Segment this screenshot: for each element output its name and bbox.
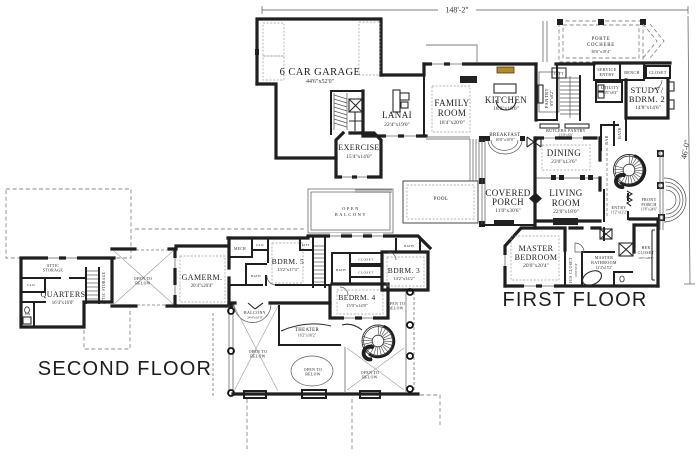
svg-text:ATTIC: ATTIC	[47, 264, 60, 268]
svg-text:BALCONY: BALCONY	[244, 310, 266, 315]
svg-text:PORCH: PORCH	[641, 202, 656, 207]
svg-text:44'6"x52'0": 44'6"x52'0"	[306, 79, 335, 85]
svg-text:16'4"x16'0": 16'4"x16'0"	[52, 301, 74, 306]
svg-text:BENCH: BENCH	[624, 70, 640, 75]
svg-text:10'0"x10'0": 10'0"x10'0"	[495, 137, 515, 142]
svg-text:ENTRY: ENTRY	[611, 205, 626, 210]
svg-text:11'2"x12'2": 11'2"x12'2"	[611, 211, 628, 215]
svg-text:BATH: BATH	[251, 274, 261, 278]
svg-text:CLO: CLO	[27, 283, 35, 287]
svg-text:14'8"x14'6": 14'8"x14'6"	[635, 105, 661, 111]
svg-text:BALCONY: BALCONY	[335, 212, 367, 217]
svg-text:HER: HER	[642, 246, 651, 250]
svg-text:POOL: POOL	[434, 197, 449, 202]
svg-text:HIS CLOSET: HIS CLOSET	[569, 257, 573, 283]
svg-text:BELOW: BELOW	[135, 282, 151, 286]
svg-text:BDRM. 2: BDRM. 2	[629, 94, 665, 104]
svg-text:ATTIC STORAGE: ATTIC STORAGE	[102, 271, 106, 304]
svg-text:20'4"x20'4": 20'4"x20'4"	[191, 284, 213, 289]
svg-text:OPEN TO: OPEN TO	[134, 277, 153, 281]
svg-text:LIFT: LIFT	[554, 72, 564, 76]
svg-text:LANAI: LANAI	[382, 110, 412, 120]
svg-text:STORAGE: STORAGE	[43, 269, 64, 273]
svg-text:CLOSET: CLOSET	[649, 70, 667, 75]
svg-text:QUARTERS: QUARTERS	[41, 290, 86, 299]
svg-text:12'4"x15'2": 12'4"x15'2"	[596, 266, 613, 270]
svg-text:22'0"x18'0": 22'0"x18'0"	[553, 209, 579, 215]
svg-text:23'0"x13'6": 23'0"x13'6"	[551, 159, 577, 165]
svg-text:22'4"x19'0": 22'4"x19'0"	[384, 122, 410, 128]
svg-text:18'4"x20'0": 18'4"x20'0"	[439, 120, 465, 126]
svg-text:PORTE: PORTE	[592, 37, 611, 42]
svg-text:FIRST FLOOR: FIRST FLOOR	[502, 289, 647, 311]
svg-text:BEDROOM: BEDROOM	[515, 253, 558, 262]
svg-text:BATH: BATH	[336, 268, 346, 272]
svg-text:DN: DN	[25, 312, 31, 316]
svg-text:UTILITY: UTILITY	[601, 85, 620, 90]
svg-text:148'-2": 148'-2"	[445, 6, 468, 15]
svg-text:15'4"x14'0": 15'4"x14'0"	[346, 154, 372, 160]
svg-text:CLOSET: CLOSET	[358, 258, 374, 262]
svg-text:BATH: BATH	[404, 244, 414, 248]
svg-text:11'6"x34'6": 11'6"x34'6"	[641, 208, 658, 212]
svg-text:BAR: BAR	[604, 135, 609, 144]
svg-text:BATH: BATH	[618, 127, 622, 139]
svg-text:BDRM. 3: BDRM. 3	[388, 266, 420, 275]
svg-text:ROOM: ROOM	[438, 108, 467, 118]
svg-text:BELOW: BELOW	[305, 373, 321, 377]
svg-text:15'2"x17'4": 15'2"x17'4"	[277, 267, 299, 272]
svg-text:OPEN TO: OPEN TO	[361, 371, 380, 375]
svg-text:BUTLERS PANTRY: BUTLERS PANTRY	[546, 128, 586, 133]
svg-text:10'4"x5'4": 10'4"x5'4"	[574, 262, 578, 277]
svg-text:11'0"x30'6": 11'0"x30'6"	[495, 208, 521, 214]
svg-text:OPEN TO: OPEN TO	[304, 368, 323, 372]
svg-text:8'0"x8'2": 8'0"x8'2"	[549, 90, 554, 106]
svg-text:LIVING: LIVING	[549, 188, 582, 198]
svg-text:15'0"x14'8": 15'0"x14'8"	[346, 303, 368, 308]
svg-text:10'6"x8'4": 10'6"x8'4"	[602, 91, 618, 95]
svg-text:ROOM: ROOM	[552, 198, 581, 208]
svg-text:14'2"x14'2": 14'2"x14'2"	[393, 276, 415, 281]
svg-text:BATHROOM: BATHROOM	[591, 260, 617, 265]
svg-text:MECH: MECH	[234, 247, 246, 251]
svg-text:ENTRY: ENTRY	[599, 72, 614, 77]
svg-text:BELOW: BELOW	[250, 355, 266, 359]
svg-text:CLO: CLO	[256, 243, 264, 247]
svg-text:FAMILY: FAMILY	[434, 98, 469, 108]
svg-text:24'4"x10'0": 24'4"x10'0"	[247, 316, 263, 320]
svg-text:SECOND FLOOR: SECOND FLOOR	[38, 358, 212, 380]
svg-text:30'6"x18'4": 30'6"x18'4"	[591, 49, 611, 54]
svg-text:CLOSET: CLOSET	[358, 271, 374, 275]
svg-text:OPEN TO: OPEN TO	[249, 350, 268, 354]
svg-text:BELOW: BELOW	[388, 307, 404, 311]
svg-text:BELOW: BELOW	[362, 376, 378, 380]
svg-text:MASTER: MASTER	[519, 244, 554, 253]
svg-text:6 CAR GARAGE: 6 CAR GARAGE	[280, 67, 361, 78]
svg-text:KITCHEN: KITCHEN	[485, 95, 527, 105]
svg-text:EXERCISE: EXERCISE	[338, 143, 379, 152]
svg-text:PORCH: PORCH	[492, 197, 524, 207]
svg-text:18'0"x18'0": 18'0"x18'0"	[493, 106, 519, 112]
svg-text:GAMERM.: GAMERM.	[182, 273, 223, 282]
svg-text:BEDRM. 4: BEDRM. 4	[338, 293, 375, 302]
svg-text:OPEN TO: OPEN TO	[387, 302, 406, 306]
svg-text:OPEN: OPEN	[342, 206, 360, 211]
svg-text:20'0"x20'4": 20'0"x20'4"	[523, 263, 549, 269]
svg-text:BDRM. 5: BDRM. 5	[272, 257, 304, 266]
svg-text:16'2"x16'2": 16'2"x16'2"	[298, 333, 317, 338]
svg-text:DINING: DINING	[547, 148, 581, 158]
svg-text:COCHERE: COCHERE	[587, 43, 615, 48]
svg-text:LIFT: LIFT	[302, 243, 310, 247]
